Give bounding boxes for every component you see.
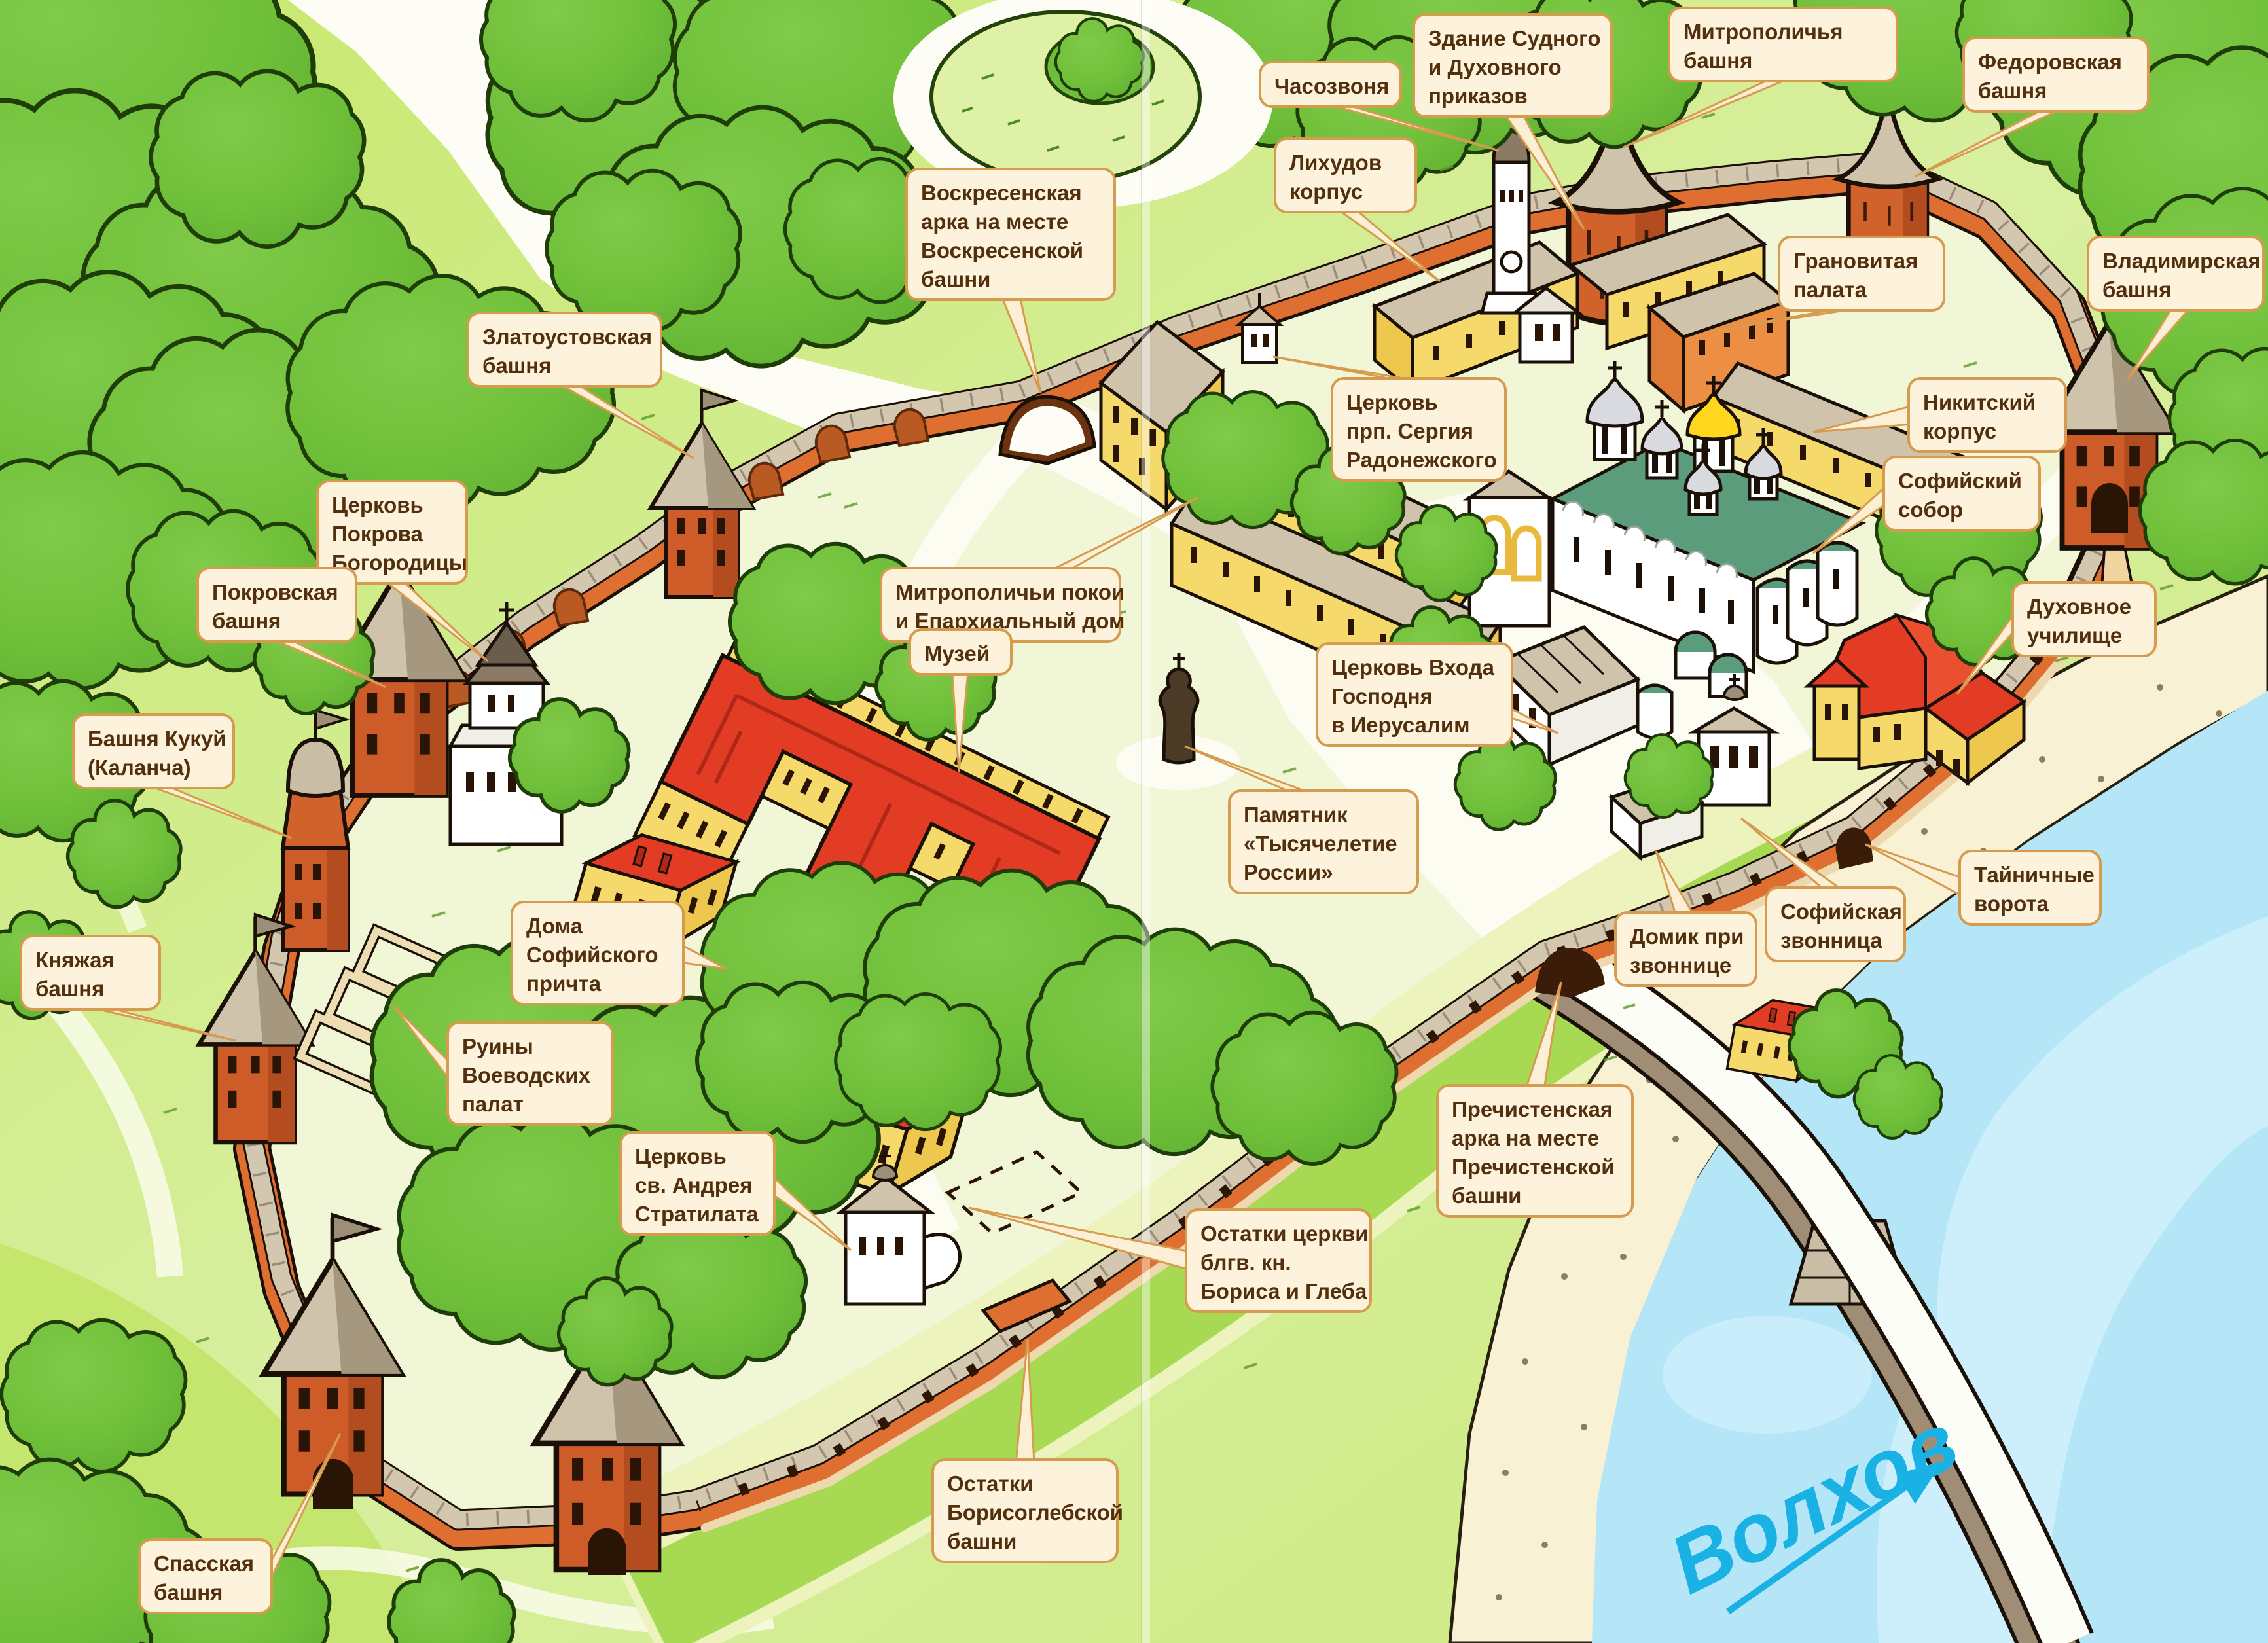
- svg-text:Митрополичьи покои: Митрополичьи покои: [895, 580, 1125, 604]
- svg-text:палат: палат: [462, 1092, 524, 1116]
- svg-text:Церковь Входа: Церковь Входа: [1331, 655, 1495, 679]
- svg-text:Здание Судного: Здание Судного: [1428, 26, 1601, 50]
- svg-text:Руины: Руины: [462, 1034, 533, 1058]
- svg-text:Радонежского: Радонежского: [1346, 448, 1497, 472]
- svg-text:прп. Сергия: прп. Сергия: [1346, 419, 1473, 443]
- svg-text:Господня: Господня: [1331, 684, 1433, 708]
- svg-text:Церковь: Церковь: [332, 493, 423, 517]
- svg-text:Софийского: Софийского: [526, 943, 658, 967]
- svg-text:Златоустовская: Златоустовская: [482, 325, 652, 349]
- svg-text:Остатки церкви: Остатки церкви: [1200, 1221, 1369, 1246]
- svg-text:башня: башня: [482, 353, 551, 378]
- svg-text:приказов: приказов: [1428, 84, 1528, 108]
- svg-text:арка на месте: арка на месте: [921, 209, 1068, 234]
- svg-text:Домик при: Домик при: [1630, 924, 1744, 948]
- svg-text:Покрова: Покрова: [332, 522, 423, 546]
- svg-text:звоннице: звоннице: [1630, 953, 1731, 977]
- svg-text:Пречистенская: Пречистенская: [1452, 1097, 1613, 1121]
- svg-text:Воеводских: Воеводских: [462, 1063, 591, 1087]
- svg-text:Тайничные: Тайничные: [1974, 863, 2095, 887]
- svg-text:Спасская: Спасская: [154, 1551, 254, 1576]
- svg-text:башни: башни: [921, 267, 990, 291]
- svg-text:Грановитая: Грановитая: [1793, 249, 1918, 273]
- svg-text:Лихудов: Лихудов: [1289, 151, 1382, 175]
- svg-text:Княжая: Княжая: [35, 948, 115, 972]
- svg-text:«Тысячелетие: «Тысячелетие: [1244, 831, 1397, 856]
- svg-text:Памятник: Памятник: [1244, 803, 1348, 827]
- svg-text:Часозвоня: Часозвоня: [1274, 74, 1389, 98]
- svg-text:училище: училище: [2027, 623, 2122, 647]
- svg-text:причта: причта: [526, 971, 602, 996]
- svg-text:Музей: Музей: [924, 641, 990, 666]
- svg-text:Церковь: Церковь: [635, 1144, 727, 1168]
- svg-text:башня: башня: [212, 609, 281, 633]
- svg-text:Стратилата: Стратилата: [635, 1202, 759, 1226]
- svg-text:Воскресенская: Воскресенская: [921, 181, 1082, 205]
- svg-text:Борисоглебской: Борисоглебской: [947, 1500, 1123, 1525]
- svg-text:башня: башня: [35, 977, 104, 1001]
- svg-text:башни: башни: [1452, 1183, 1521, 1208]
- svg-text:Владимирская: Владимирская: [2102, 249, 2261, 273]
- svg-text:Софийский: Софийский: [1898, 469, 2022, 493]
- svg-text:Никитский: Никитский: [1923, 390, 2036, 414]
- svg-text:Покровская: Покровская: [212, 580, 338, 604]
- svg-text:башня: башня: [1978, 79, 2047, 103]
- svg-text:корпус: корпус: [1923, 419, 1996, 443]
- svg-text:св. Андрея: св. Андрея: [635, 1173, 752, 1197]
- svg-text:арка на месте: арка на месте: [1452, 1126, 1599, 1150]
- svg-text:Воскресенской: Воскресенской: [921, 238, 1083, 262]
- svg-text:Бориса и Глеба: Бориса и Глеба: [1200, 1279, 1367, 1303]
- svg-text:башни: башни: [947, 1529, 1017, 1553]
- svg-text:корпус: корпус: [1289, 179, 1363, 204]
- svg-text:башня: башня: [154, 1580, 223, 1604]
- svg-text:и Духовного: и Духовного: [1428, 55, 1562, 79]
- svg-text:палата: палата: [1793, 278, 1867, 302]
- svg-text:собор: собор: [1898, 497, 1963, 522]
- svg-text:Пречистенской: Пречистенской: [1452, 1155, 1615, 1179]
- svg-text:России»: России»: [1244, 860, 1333, 884]
- svg-text:Софийская: Софийская: [1780, 899, 1902, 924]
- svg-text:Остатки: Остатки: [947, 1471, 1034, 1496]
- svg-text:Митрополичья: Митрополичья: [1683, 20, 1843, 44]
- svg-text:в Иерусалим: в Иерусалим: [1331, 713, 1470, 737]
- svg-text:башня: башня: [1683, 48, 1752, 73]
- svg-text:ворота: ворота: [1974, 892, 2049, 916]
- svg-text:Духовное: Духовное: [2027, 594, 2131, 619]
- svg-text:Церковь: Церковь: [1346, 390, 1438, 414]
- svg-text:Федоровская: Федоровская: [1978, 50, 2122, 74]
- svg-text:Дома: Дома: [526, 914, 583, 938]
- svg-text:(Каланча): (Каланча): [88, 755, 191, 780]
- svg-text:башня: башня: [2102, 278, 2171, 302]
- svg-text:звонница: звонница: [1780, 928, 1882, 952]
- svg-text:Башня Кукуй: Башня Кукуй: [88, 727, 226, 751]
- svg-text:блгв. кн.: блгв. кн.: [1200, 1250, 1291, 1274]
